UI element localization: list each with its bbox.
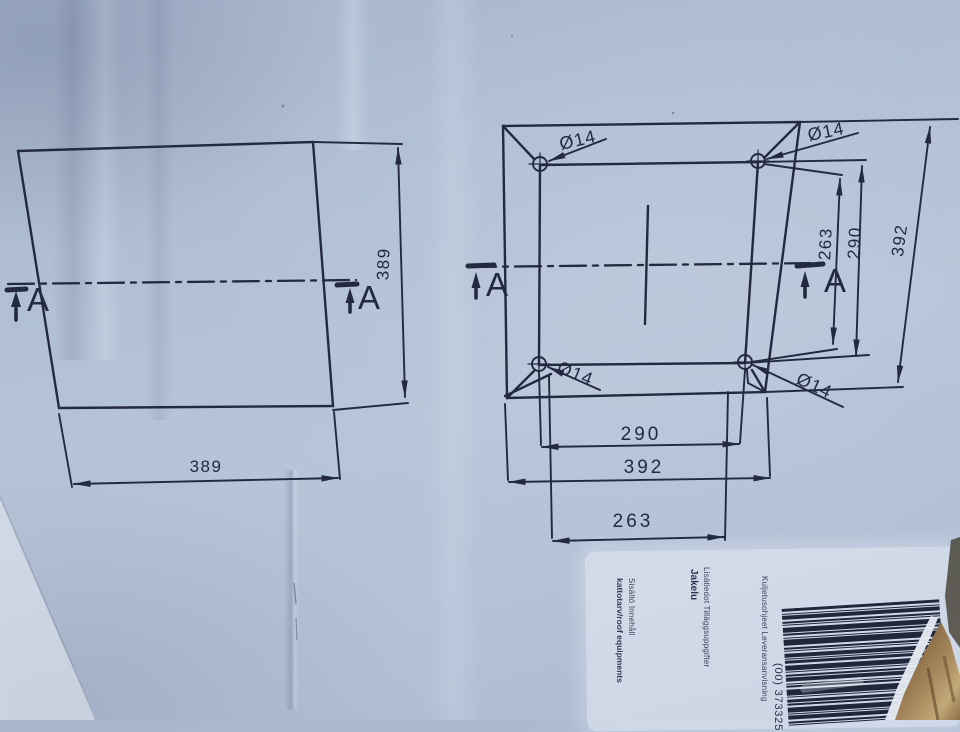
dimension-line-width: [74, 478, 338, 484]
barcode-stripes: [782, 599, 947, 726]
extension-line: [758, 160, 866, 162]
extension-line: [539, 372, 541, 445]
extension-line: [764, 164, 842, 175]
label-contents-value: kattotarv/roof equipments: [615, 578, 625, 683]
section-arrowhead: [11, 291, 21, 307]
section-arrowhead: [472, 272, 481, 288]
bolt-holes: [528, 150, 769, 375]
dim-right: 263: [815, 227, 836, 261]
extension-line: [59, 414, 72, 487]
right-drawing-top-view: A A Ø14 Ø14 Ø14 Ø14 263 290 392: [468, 118, 958, 541]
section-label: A: [486, 266, 508, 303]
dim-width: 389: [190, 457, 223, 476]
extension-line: [745, 355, 869, 363]
extension-line: [765, 387, 903, 392]
hole-dia-label: Ø14: [793, 368, 835, 402]
section-cut-bar: [797, 264, 823, 266]
extension-line: [725, 392, 728, 540]
label-contents-title: Sisältö Innehåll: [627, 578, 636, 635]
section-label: A: [358, 279, 380, 316]
hole-dia-label: Ø14: [555, 357, 597, 389]
dimension-line: [509, 478, 770, 482]
corner-diagonal: [764, 122, 800, 158]
hole-dia-label: Ø14: [557, 126, 598, 154]
corner-diagonal: [503, 126, 534, 159]
extension-line: [334, 412, 340, 479]
dim-right: 392: [888, 223, 911, 258]
section-cut-bar: [337, 284, 357, 285]
center-cross: [645, 206, 648, 324]
section-cut-bar: [7, 289, 26, 290]
section-label: A: [27, 281, 49, 318]
extension-line: [740, 370, 745, 443]
section-arrowhead: [346, 288, 355, 303]
centerline: [470, 263, 820, 267]
dimension-line-height: [398, 148, 405, 397]
dimension-line: [553, 537, 724, 541]
extension-line: [800, 119, 958, 122]
dim-right: 290: [844, 226, 865, 260]
label-distribution-value: Jakelu: [688, 569, 699, 600]
label-additional-info-title: Lisätiedot Tilläggsuppgifter: [702, 567, 711, 667]
dim-bottom: 392: [624, 457, 665, 478]
extension-line: [313, 142, 402, 144]
extension-line: [505, 404, 508, 480]
extension-line: [333, 403, 408, 410]
centerline: [8, 280, 356, 284]
dim-height: 389: [373, 247, 393, 281]
label-transport-title: Kuljetusohjeet Leveransanvisning: [760, 576, 769, 702]
dim-bottom: 263: [613, 511, 654, 532]
extension-line: [549, 376, 552, 538]
section-arrowhead: [801, 271, 810, 287]
dimension-line: [856, 166, 862, 356]
inner-outline: [539, 162, 758, 365]
barcode-number: (00) 373325: [772, 663, 784, 731]
extension-line: [767, 398, 770, 476]
left-drawing-side-view: A A 389 389: [7, 142, 408, 487]
plate-outline: [18, 142, 333, 408]
dim-bottom: 290: [621, 424, 662, 445]
